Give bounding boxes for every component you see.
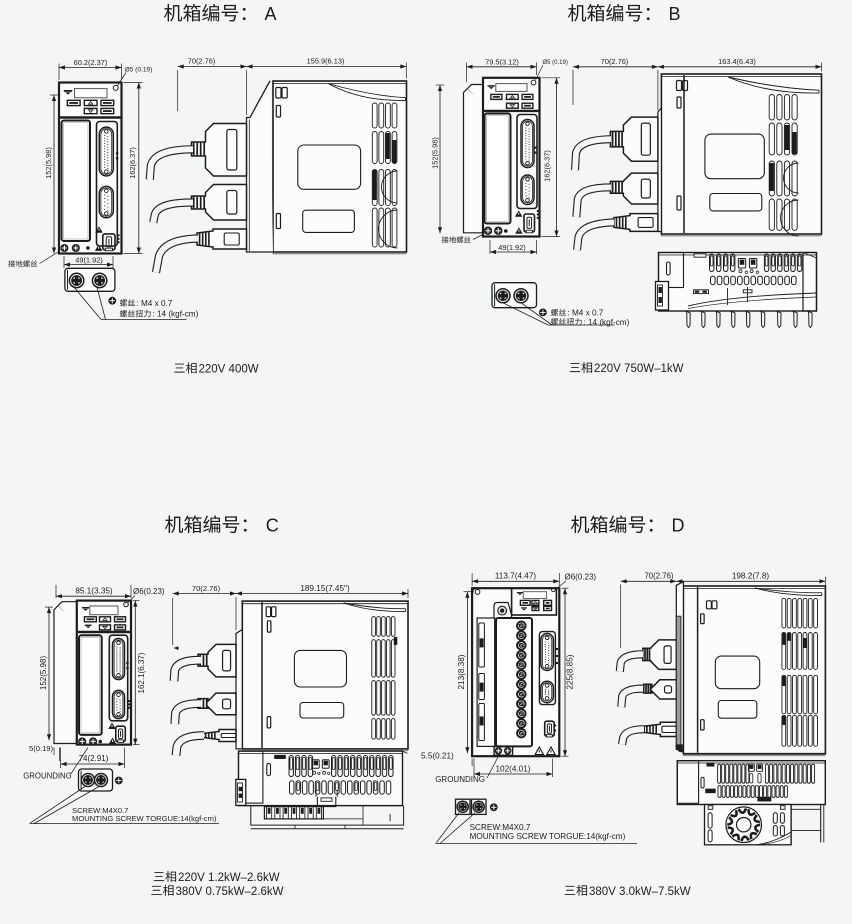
svg-text:198.2(7.8): 198.2(7.8) [732,572,770,581]
svg-text:162(6.37): 162(6.37) [543,150,552,182]
svg-text:GROUNDING: GROUNDING [435,775,485,784]
svg-text:70(2.76): 70(2.76) [188,57,216,66]
svg-text:D: D [672,515,685,535]
svg-text:A: A [265,4,277,24]
svg-text:152(5.98): 152(5.98) [39,656,48,691]
svg-text:162(6.37): 162(6.37) [128,147,137,179]
svg-text:SCREW:M4X0.7: SCREW:M4X0.7 [470,823,531,832]
svg-text:155.9(6.13): 155.9(6.13) [307,57,345,66]
svg-text:213(8.38): 213(8.38) [457,654,466,689]
svg-text:225(8.85): 225(8.85) [566,654,575,689]
svg-text:70(2.76): 70(2.76) [192,584,221,593]
svg-text:: 14 (kgf-cm): : 14 (kgf-cm) [152,310,198,319]
svg-text:5.5(0.21): 5.5(0.21) [421,752,454,761]
svg-text:220V 400W: 220V 400W [199,364,259,376]
svg-text:Ø5 (0.19): Ø5 (0.19) [125,66,153,73]
svg-text:49(1.92): 49(1.92) [498,243,526,252]
svg-text:: 14 (kgf-cm): : 14 (kgf-cm) [583,318,629,327]
svg-text:380V 0.75kW–2.6kW: 380V 0.75kW–2.6kW [176,886,284,898]
svg-text:113.7(4.47): 113.7(4.47) [495,572,537,581]
svg-text:: M4 x 0.7: : M4 x 0.7 [136,299,172,308]
svg-text:220V 750W–1kW: 220V 750W–1kW [594,363,684,375]
svg-text:5(0.19): 5(0.19) [29,744,54,753]
svg-text:Ø5 (0.19): Ø5 (0.19) [543,60,568,66]
svg-text:220V 1.2kW–2.6kW: 220V 1.2kW–2.6kW [178,872,280,884]
svg-text:85.1(3.35): 85.1(3.35) [75,587,113,596]
svg-text:GROUNDING: GROUNDING [23,771,72,780]
svg-text:79.5(3.12): 79.5(3.12) [485,57,519,66]
svg-text:152(5.98): 152(5.98) [44,147,53,179]
svg-text:70(2.76): 70(2.76) [601,57,629,66]
svg-text:189.15(7.45"): 189.15(7.45") [300,584,350,593]
svg-text:60.2(2.37): 60.2(2.37) [74,58,108,67]
svg-text:49(1.92): 49(1.92) [75,256,103,265]
svg-text:C: C [266,515,279,535]
svg-text:102(4.01): 102(4.01) [495,764,530,773]
svg-text:70(2.76): 70(2.76) [644,572,673,581]
svg-text:MOUNTING SCREW TORGUE:14(kgf-c: MOUNTING SCREW TORGUE:14(kgf-cm) [470,832,626,841]
svg-text:: M4 x 0.7: : M4 x 0.7 [567,309,603,318]
svg-text:380V 3.0kW–7.5kW: 380V 3.0kW–7.5kW [589,886,691,898]
svg-text:MOUNTING SCREW TORGUE:14(kgf-c: MOUNTING SCREW TORGUE:14(kgf-cm) [72,814,217,823]
svg-text:Ø6(0.23): Ø6(0.23) [133,587,165,596]
svg-text:162.1(6.37): 162.1(6.37) [137,652,146,693]
svg-text:Ø6(0.23): Ø6(0.23) [565,572,597,581]
svg-text:152(5.98): 152(5.98) [431,137,440,169]
svg-text:B: B [669,4,681,24]
svg-text:163.4(6.43): 163.4(6.43) [718,57,756,66]
